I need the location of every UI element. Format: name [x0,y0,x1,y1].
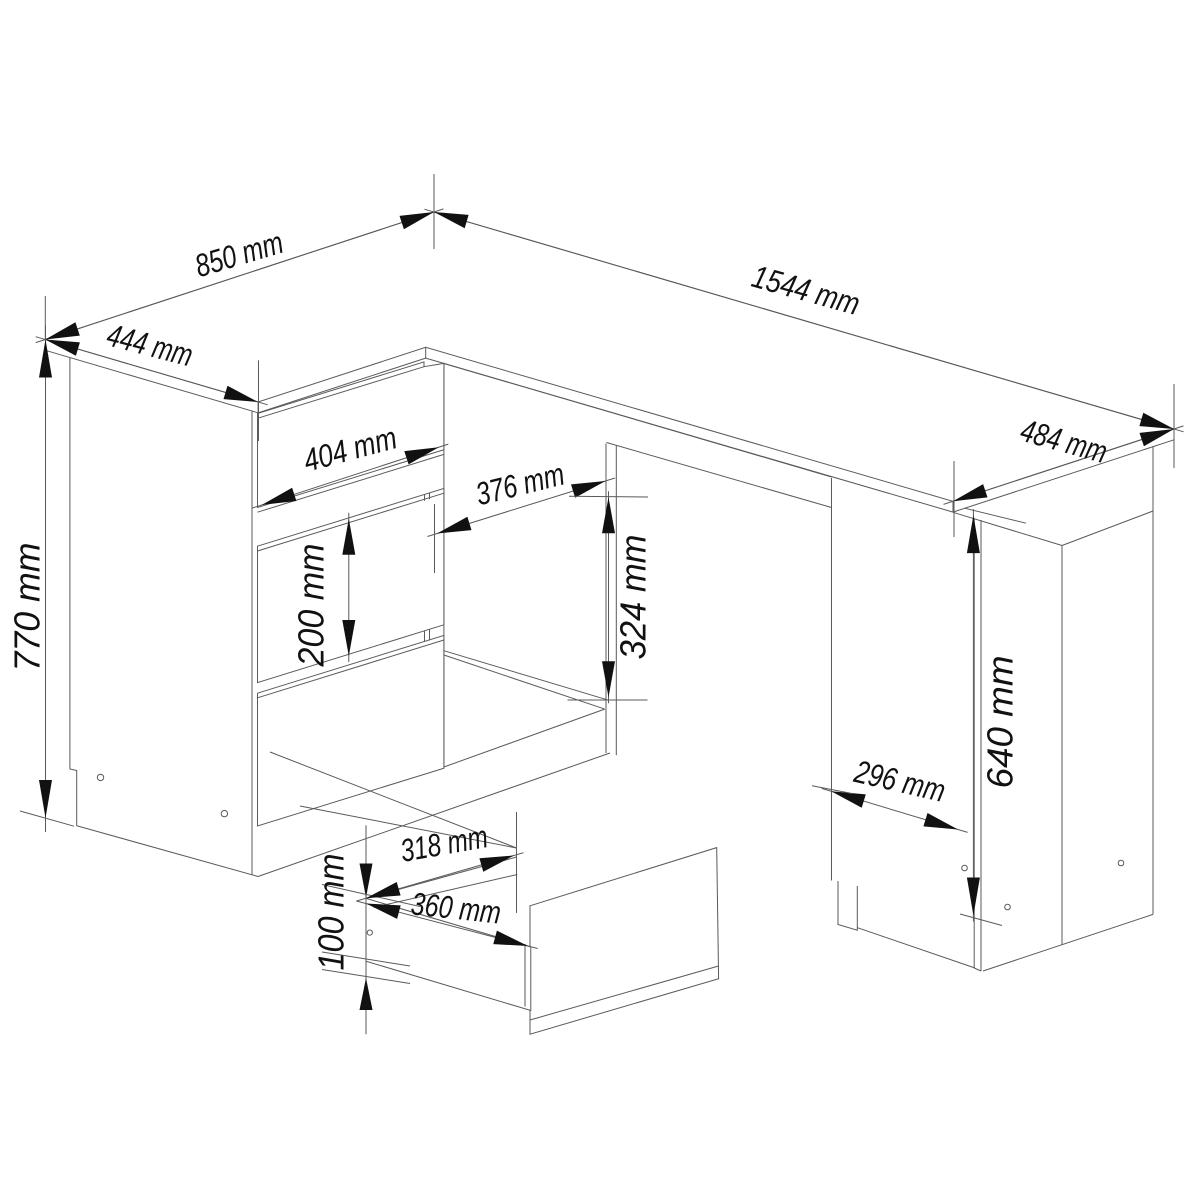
svg-text:100 mm: 100 mm [311,854,352,971]
svg-text:770 mm: 770 mm [7,543,48,672]
svg-text:640 mm: 640 mm [980,656,1021,789]
svg-text:324 mm: 324 mm [613,535,654,660]
svg-text:200 mm: 200 mm [291,544,332,668]
